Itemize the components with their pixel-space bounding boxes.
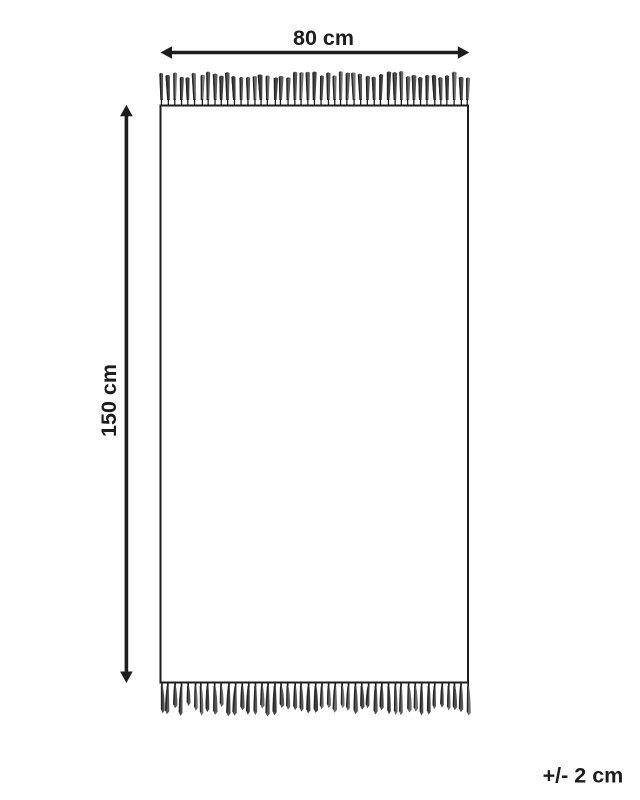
svg-text:150 cm: 150 cm	[97, 364, 121, 437]
svg-text:+/- 2 cm: +/- 2 cm	[543, 763, 624, 787]
svg-text:80 cm: 80 cm	[293, 26, 354, 50]
